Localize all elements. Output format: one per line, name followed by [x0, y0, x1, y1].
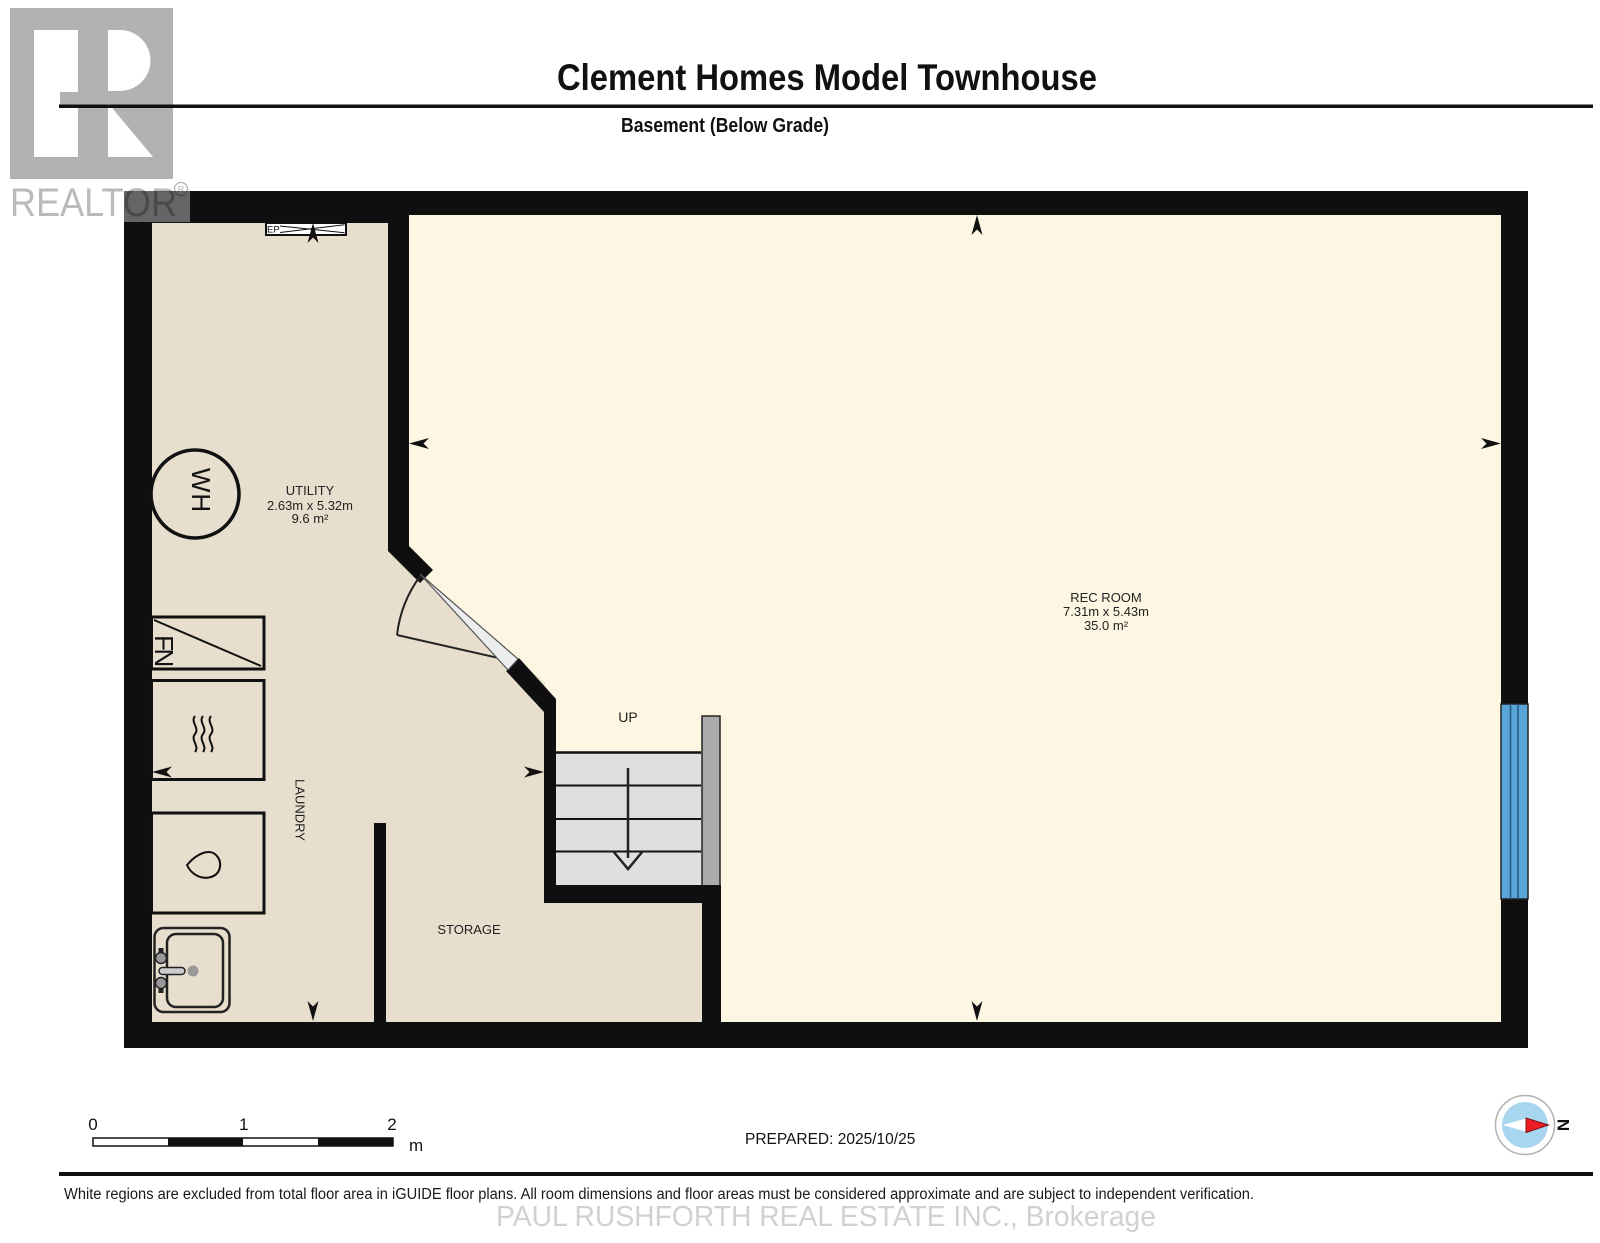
- svg-text:N: N: [1554, 1119, 1573, 1131]
- svg-text:9.6 m²: 9.6 m²: [292, 511, 330, 526]
- svg-text:PREPARED: 2025/10/25: PREPARED: 2025/10/25: [745, 1131, 915, 1148]
- svg-text:2: 2: [387, 1115, 396, 1134]
- svg-text:LAUNDRY: LAUNDRY: [293, 779, 308, 841]
- svg-text:PAUL RUSHFORTH REAL ESTATE INC: PAUL RUSHFORTH REAL ESTATE INC., Brokera…: [496, 1201, 1156, 1233]
- svg-text:FN: FN: [149, 635, 179, 665]
- svg-text:UP: UP: [618, 709, 637, 725]
- svg-text:7.31m x 5.43m: 7.31m x 5.43m: [1063, 604, 1149, 619]
- svg-text:UTILITY: UTILITY: [286, 483, 335, 498]
- svg-text:1: 1: [239, 1115, 248, 1134]
- svg-text:35.0 m²: 35.0 m²: [1084, 618, 1129, 633]
- svg-text:REC ROOM: REC ROOM: [1070, 590, 1142, 605]
- svg-text:Basement (Below Grade): Basement (Below Grade): [621, 114, 829, 137]
- svg-text:REALTOR: REALTOR: [10, 181, 177, 225]
- svg-text:R: R: [178, 185, 185, 195]
- svg-text:EP: EP: [267, 225, 280, 236]
- svg-text:0: 0: [88, 1115, 97, 1134]
- svg-text:m: m: [409, 1136, 423, 1155]
- svg-text:Clement Homes Model Townhouse: Clement Homes Model Townhouse: [557, 57, 1097, 98]
- svg-text:STORAGE: STORAGE: [437, 922, 501, 937]
- svg-text:WH: WH: [186, 468, 216, 513]
